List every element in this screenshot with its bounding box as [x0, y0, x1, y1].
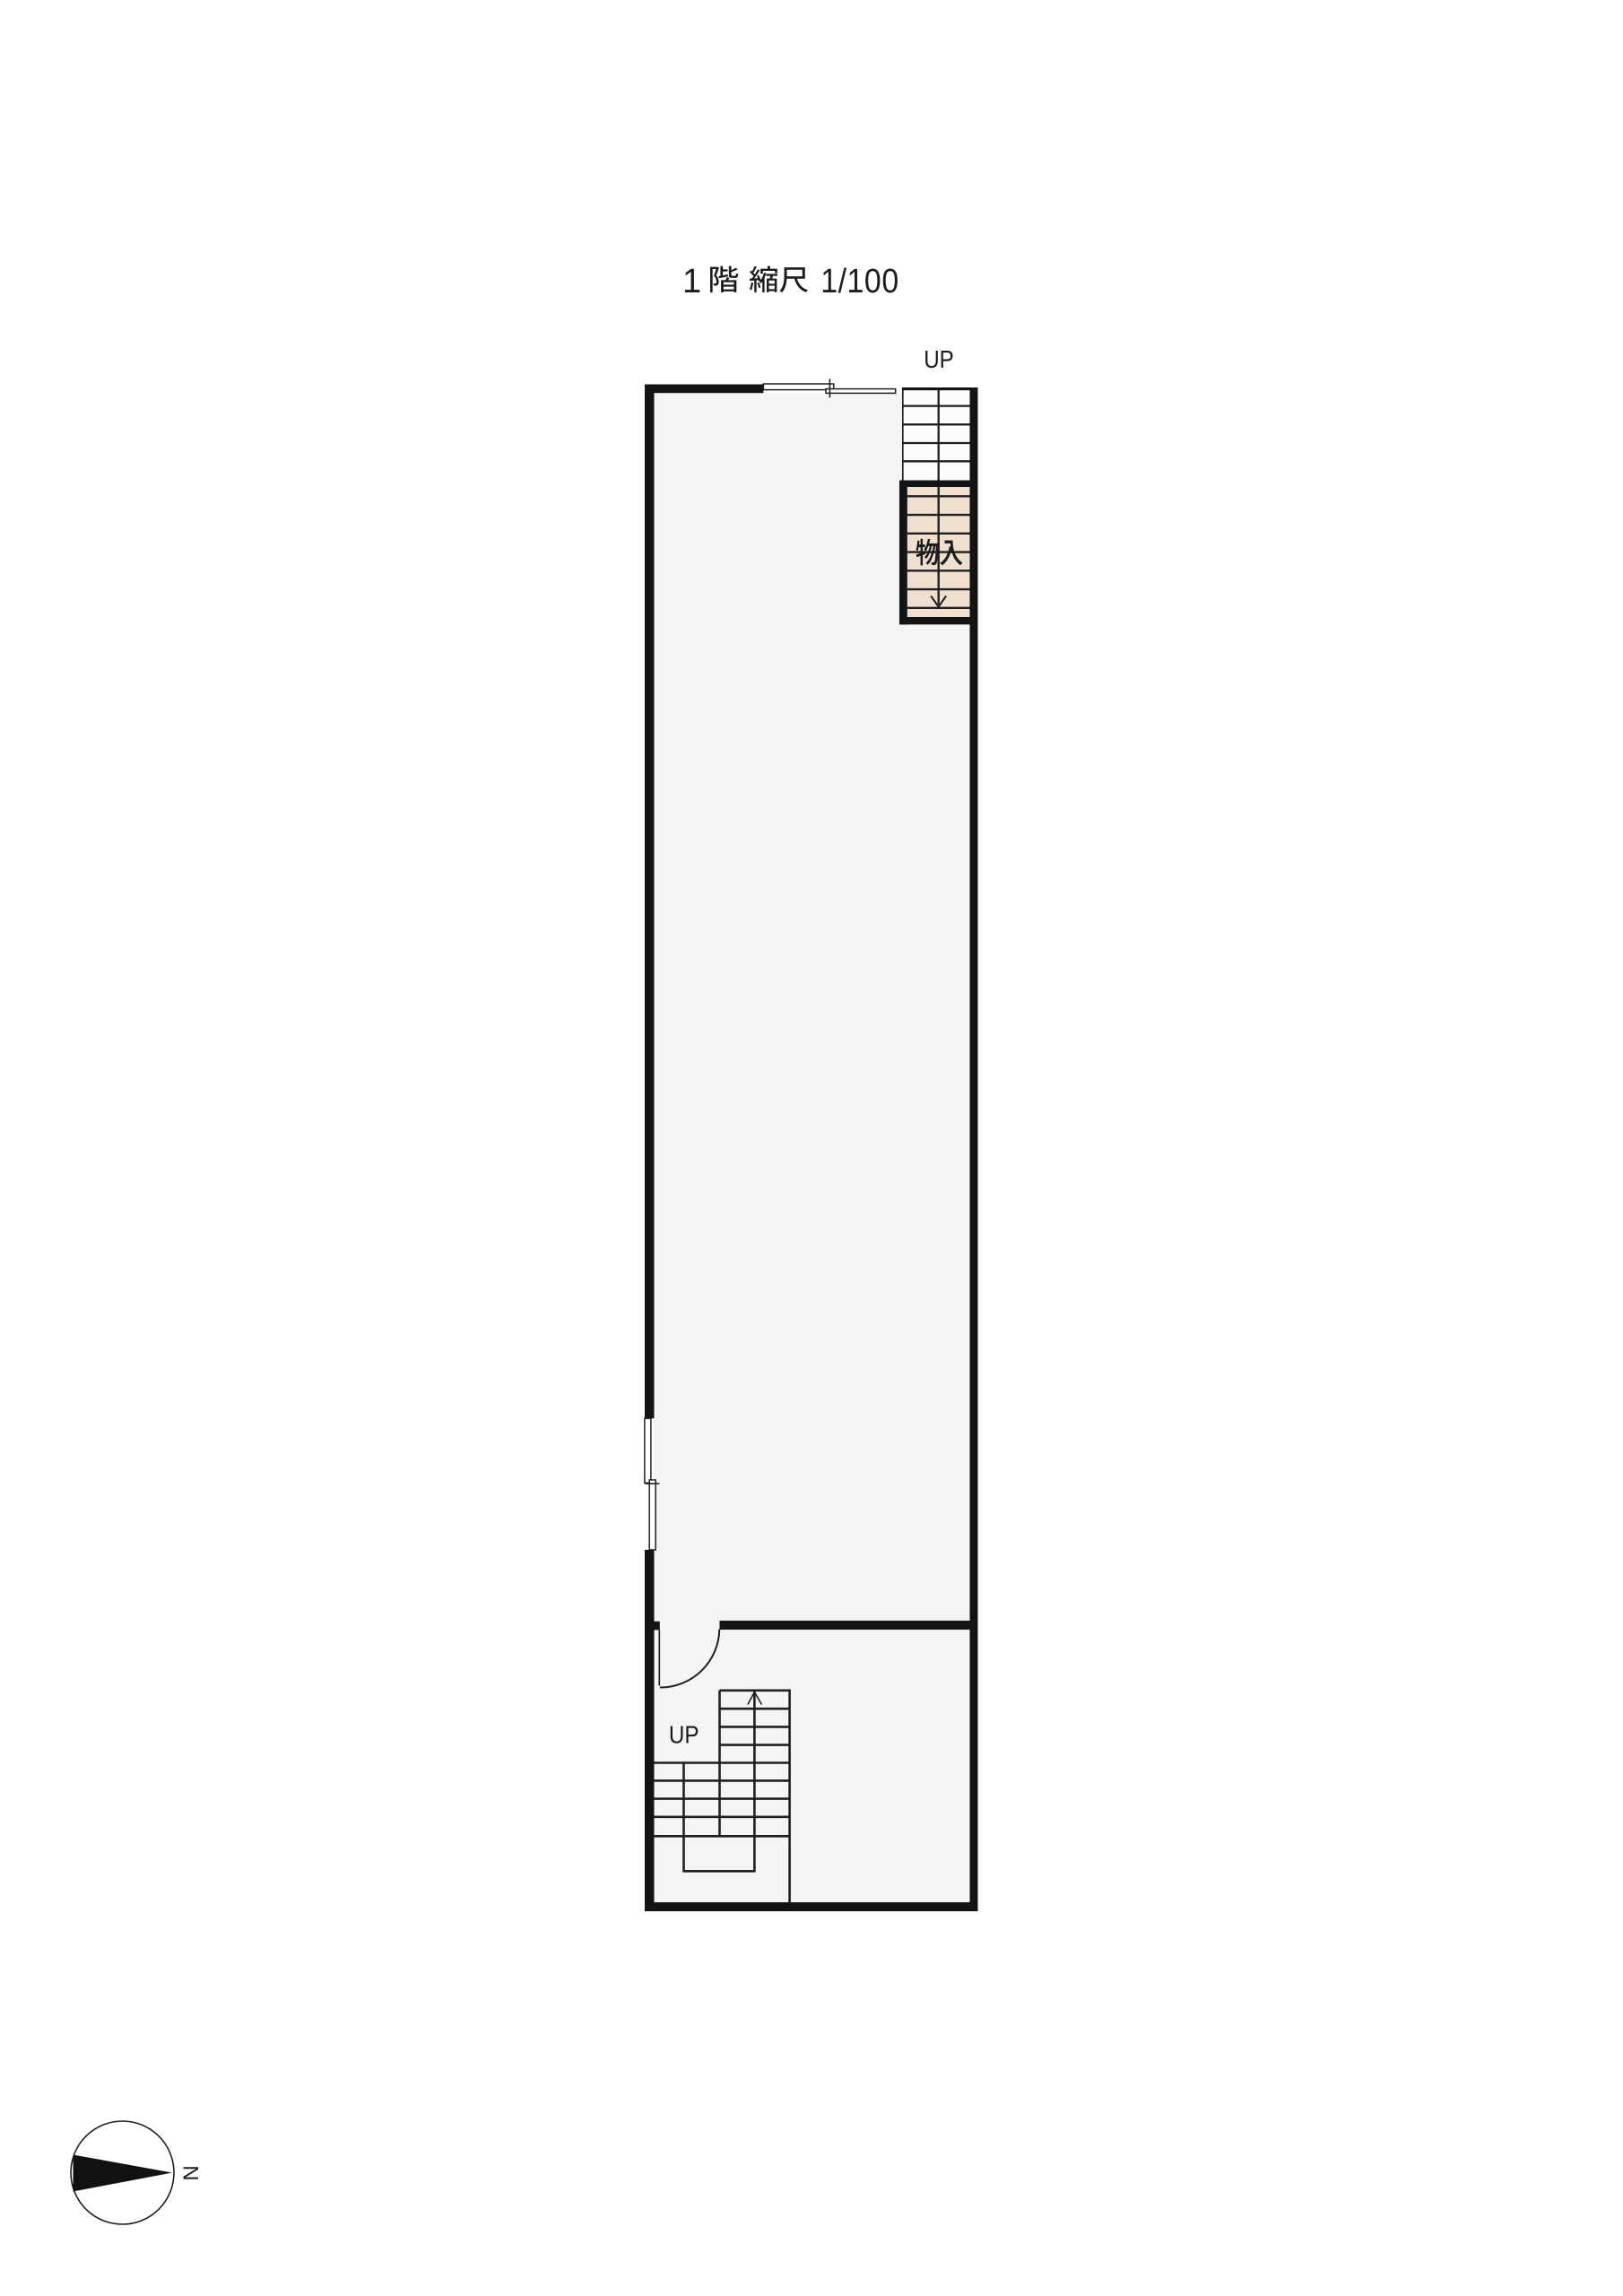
svg-text:1: 1	[682, 263, 701, 300]
svg-text:1/100: 1/100	[820, 261, 898, 300]
svg-text:UP: UP	[924, 344, 954, 373]
svg-text:UP: UP	[669, 1720, 699, 1749]
svg-text:N: N	[178, 2165, 203, 2180]
